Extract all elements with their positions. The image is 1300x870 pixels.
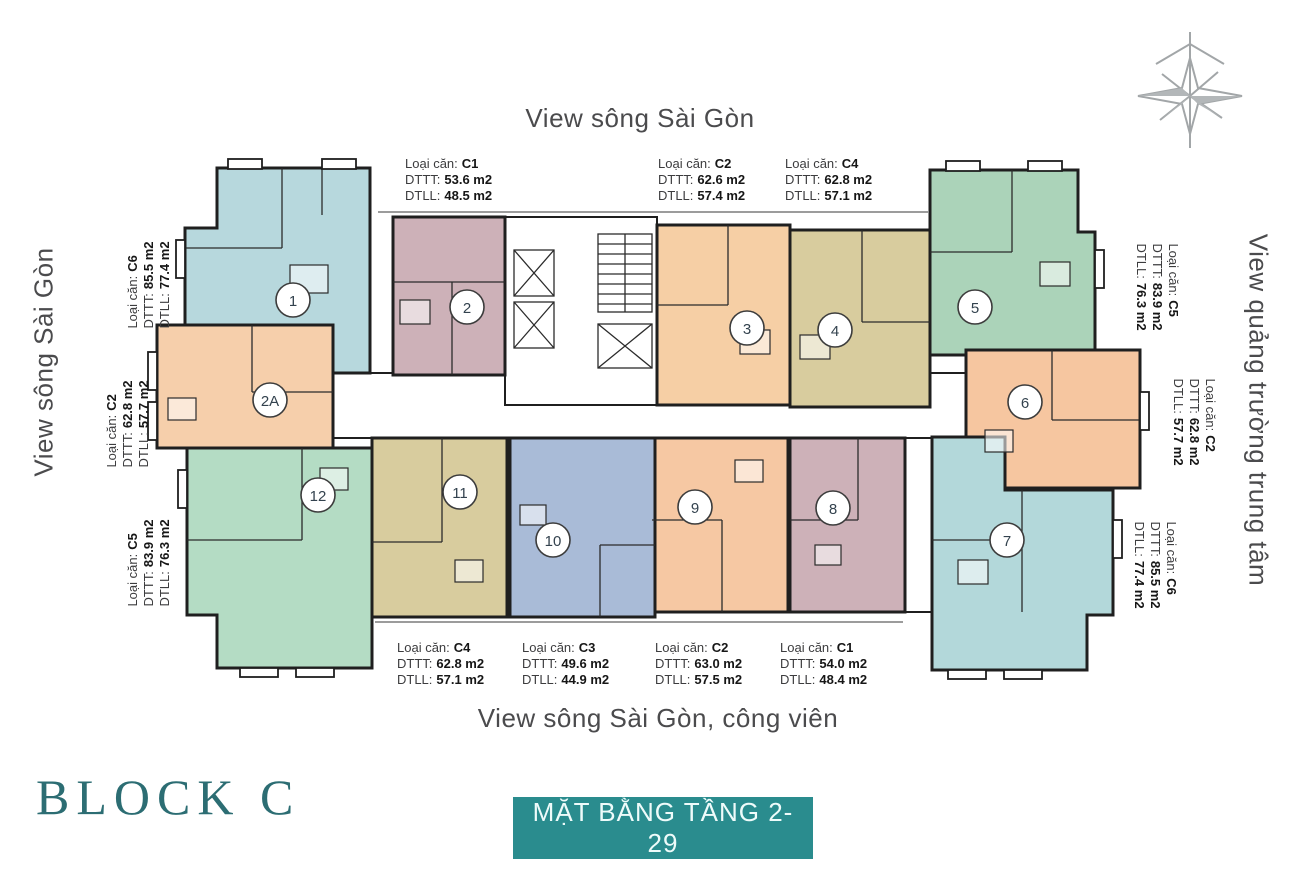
unit-6-badge: 6 [1008, 385, 1042, 419]
unit-2-region [393, 217, 505, 375]
unit-3-badge: 3 [730, 311, 764, 345]
spec-label-bottom-c3: Loại căn:C3 DTTT:49.6 m2 DTLL:44.9 m2 [522, 640, 609, 688]
svg-text:9: 9 [691, 500, 699, 517]
spec-label-right-c5: Loại căn:C5 DTTT:83.9 m2 DTLL:76.3 m2 [1133, 243, 1181, 330]
unit-10-region [510, 438, 655, 617]
svg-text:2: 2 [463, 300, 471, 317]
service-shaft [905, 438, 932, 612]
svg-text:4: 4 [831, 323, 839, 340]
svg-text:12: 12 [310, 488, 327, 505]
floor-range-button[interactable]: MẶT BẰNG TẦNG 2-29 [513, 797, 813, 859]
unit-4-badge: 4 [818, 313, 852, 347]
view-title-top: View sông Sài Gòn [525, 103, 754, 134]
spec-label-bottom-c4: Loại căn:C4 DTTT:62.8 m2 DTLL:57.1 m2 [397, 640, 484, 688]
spec-label-top-c4: Loại căn:C4 DTTT:62.8 m2 DTLL:57.1 m2 [785, 156, 872, 204]
unit-2-badge: 2 [450, 290, 484, 324]
unit-2a-region [157, 325, 333, 448]
unit-11-badge: 11 [443, 475, 477, 509]
unit-5-badge: 5 [958, 290, 992, 324]
view-title-left: View sông Sài Gòn [29, 247, 60, 476]
svg-text:10: 10 [545, 533, 562, 550]
spec-label-bottom-c2: Loại căn:C2 DTTT:63.0 m2 DTLL:57.5 m2 [655, 640, 742, 688]
spec-label-bottom-c1: Loại căn:C1 DTTT:54.0 m2 DTLL:48.4 m2 [780, 640, 867, 688]
spec-label-left-c5: Loại căn:C5 DTTT:83.9 m2 DTLL:76.3 m2 [125, 519, 173, 606]
spec-label-left-c6: Loại căn:C6 DTTT:85.5 m2 DTLL:77.4 m2 [125, 241, 173, 328]
svg-text:3: 3 [743, 321, 751, 338]
compass-icon [1138, 32, 1242, 148]
view-title-bottom: View sông Sài Gòn, công viên [478, 703, 838, 734]
svg-text:7: 7 [1003, 533, 1011, 550]
unit-4-region [790, 230, 930, 407]
block-title: BLOCK C [36, 768, 300, 826]
unit-2a-badge: 2A [253, 383, 287, 417]
svg-text:5: 5 [971, 300, 979, 317]
unit-1-badge: 1 [276, 283, 310, 317]
unit-9-region [652, 438, 788, 612]
unit-8-region [790, 438, 905, 612]
unit-3-region [657, 225, 790, 405]
spec-label-right-c6: Loại căn:C6 DTTT:85.5 m2 DTLL:77.4 m2 [1131, 521, 1179, 608]
unit-10-badge: 10 [536, 523, 570, 557]
unit-11-region [372, 438, 507, 617]
unit-7-badge: 7 [990, 523, 1024, 557]
spec-label-left-c2: Loại căn:C2 DTTT:62.8 m2 DTLL:57.7 m2 [104, 380, 152, 467]
spec-label-right-c2: Loại căn:C2 DTTT:62.8 m2 DTLL:57.7 m2 [1170, 378, 1218, 465]
view-title-right: View quảng trường trung tâm [1243, 234, 1274, 586]
floor-plan-page: 1 2 2A 3 4 5 6 7 8 9 10 11 12 View sông … [0, 0, 1300, 870]
unit-12-badge: 12 [301, 478, 335, 512]
svg-text:11: 11 [452, 485, 468, 502]
spec-label-top-c1: Loại căn:C1 DTTT:53.6 m2 DTLL:48.5 m2 [405, 156, 492, 204]
svg-text:2A: 2A [261, 393, 279, 410]
unit-8-badge: 8 [816, 491, 850, 525]
unit-9-badge: 9 [678, 490, 712, 524]
svg-text:6: 6 [1021, 395, 1029, 412]
elevator-core [505, 217, 657, 405]
svg-text:8: 8 [829, 501, 837, 518]
spec-label-top-c2: Loại căn:C2 DTTT:62.6 m2 DTLL:57.4 m2 [658, 156, 745, 204]
svg-text:1: 1 [289, 293, 297, 310]
